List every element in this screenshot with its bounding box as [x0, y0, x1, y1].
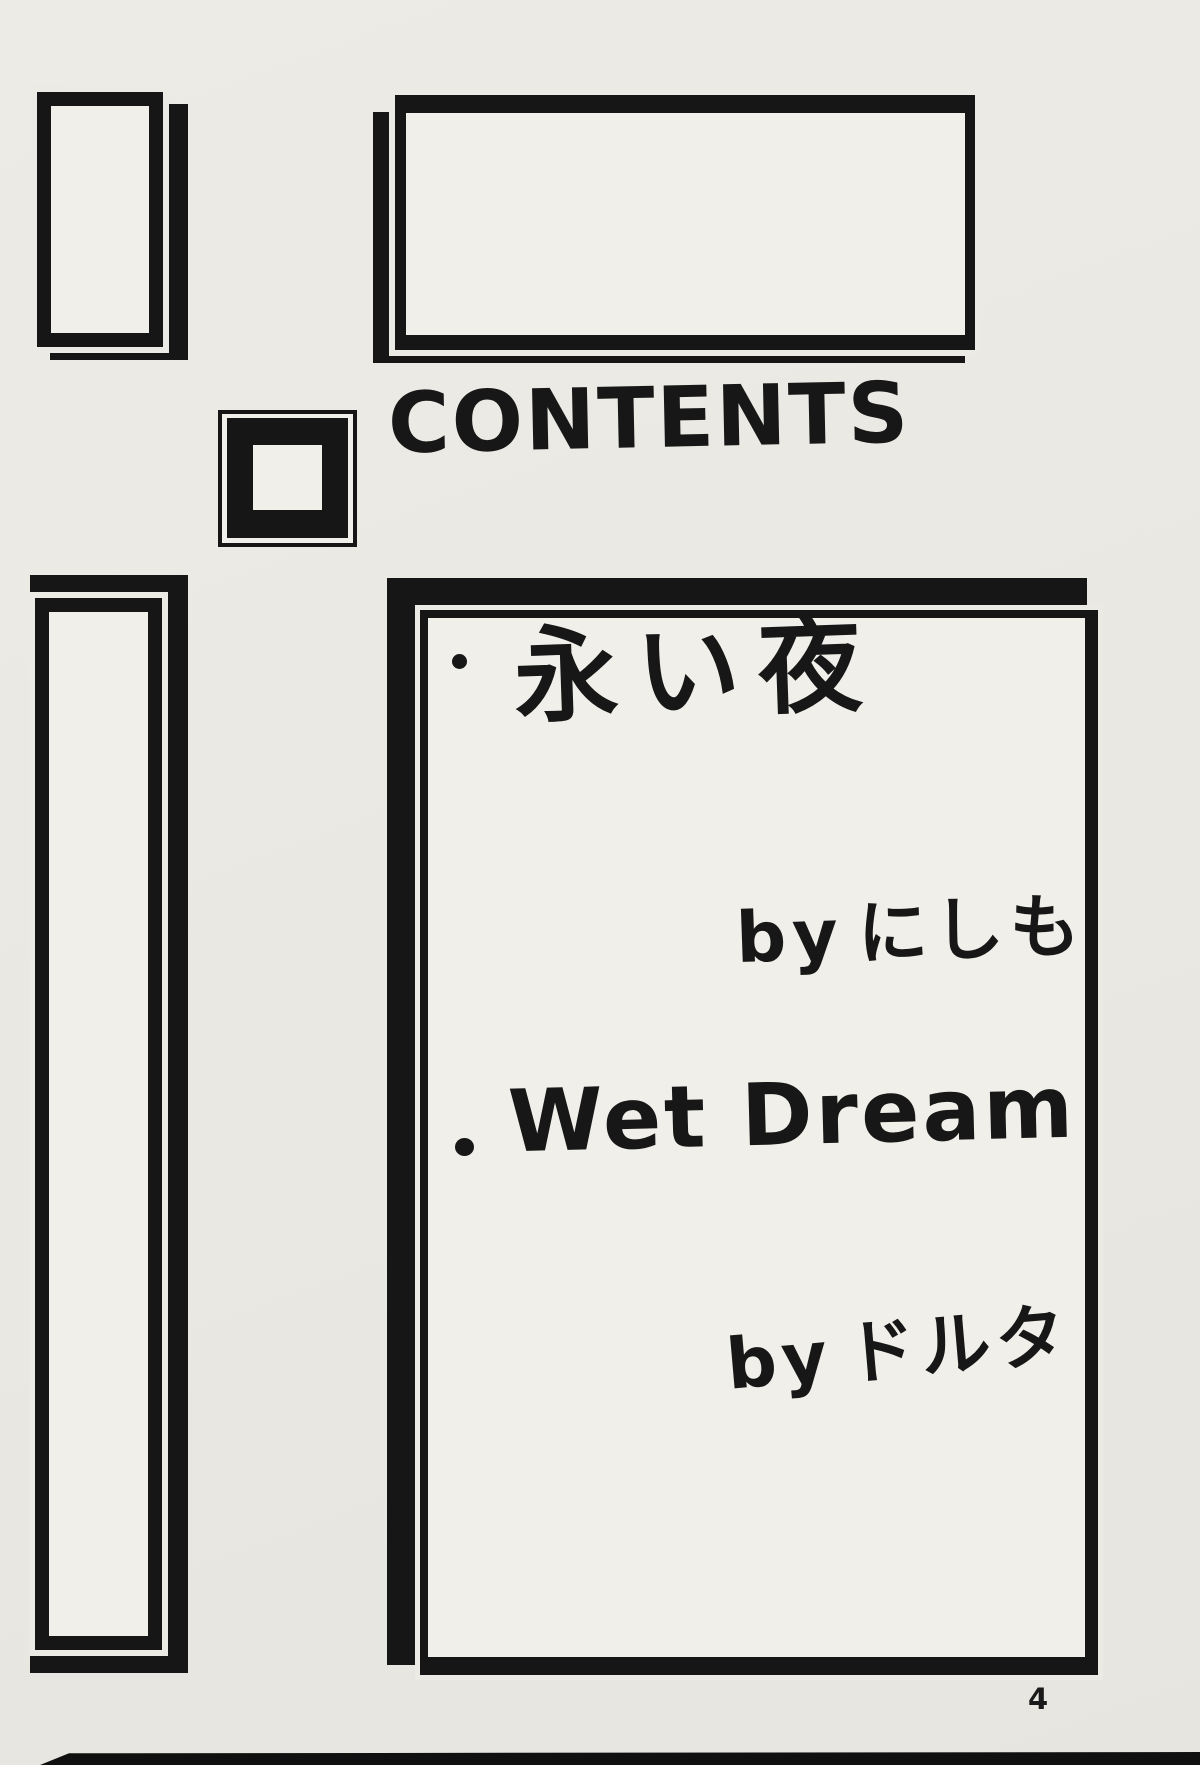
- scanned-contents-page: CONTENTS 永い夜 byにしも Wet Dream byドルタ 4: [0, 0, 1200, 1765]
- author-name: にしも: [856, 885, 1087, 975]
- square-bullet-icon-fill: [227, 418, 348, 538]
- by-label: by: [735, 893, 846, 979]
- contents-item-title: 永い夜: [512, 608, 882, 735]
- contents-item-author: byにしも: [735, 888, 1087, 977]
- contents-item-title: Wet Dream: [507, 1061, 1077, 1170]
- square-bullet-icon-hole: [253, 445, 322, 510]
- left-tall-frame: [35, 598, 162, 1650]
- top-left-frame: [37, 92, 163, 347]
- contents-box: 永い夜 byにしも Wet Dream byドルタ: [420, 610, 1098, 1675]
- bullet-dot: [452, 654, 467, 669]
- scan-edge-strip: [40, 1752, 1200, 1765]
- contents-item-author: byドルタ: [723, 1297, 1073, 1404]
- author-name: ドルタ: [842, 1294, 1073, 1395]
- top-right-frame: [395, 95, 975, 350]
- page-number: 4: [1028, 1682, 1048, 1716]
- square-bullet-icon: [218, 410, 357, 547]
- page-title: CONTENTS: [387, 367, 911, 470]
- bullet-dot: [455, 1138, 474, 1156]
- by-label: by: [723, 1315, 835, 1406]
